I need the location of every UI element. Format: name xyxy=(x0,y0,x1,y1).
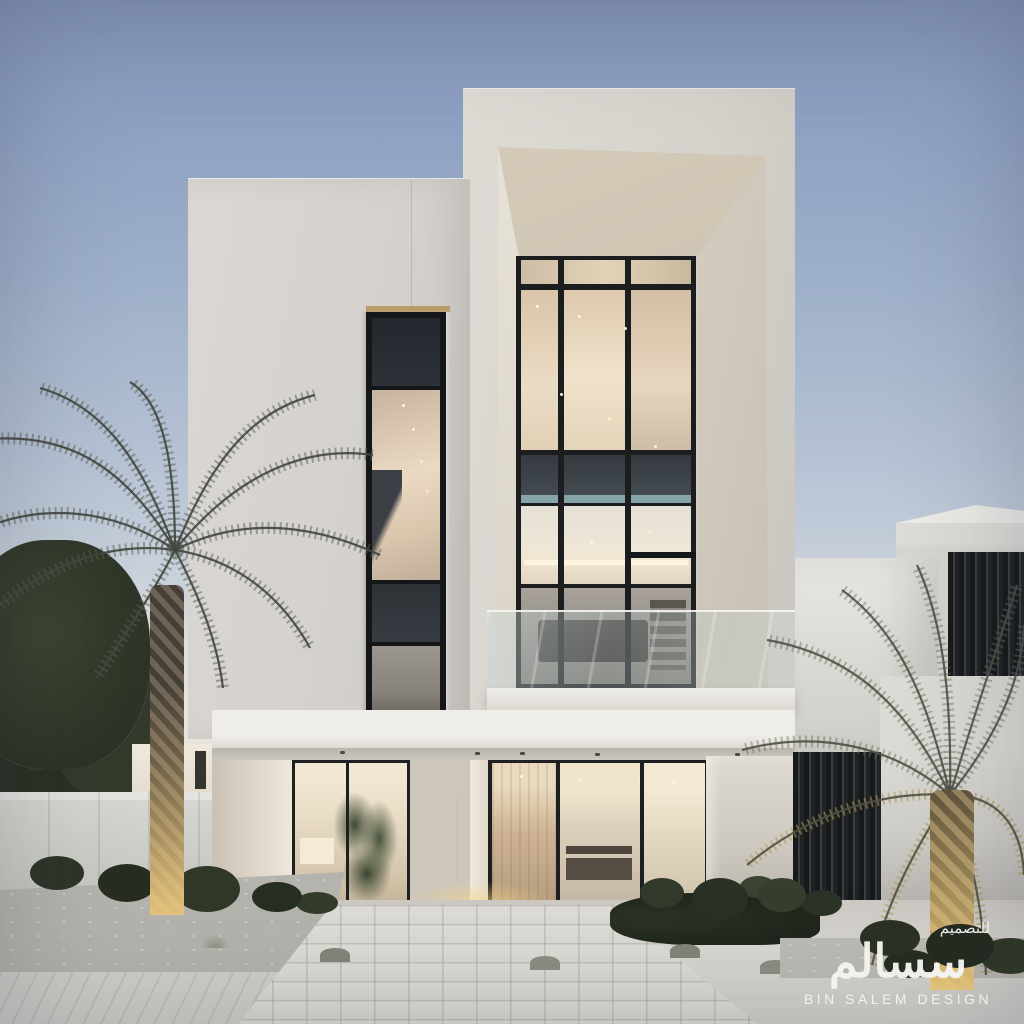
architectural-photo-modern-villa: للتصميم سسالم BIN SALEM DESIGN xyxy=(0,0,1024,1024)
watermark-brand-text: BIN SALEM DESIGN xyxy=(788,992,1008,1006)
vertical-window-spot-lights xyxy=(402,404,405,407)
watermark-arabic-large: سسالم xyxy=(788,938,1008,984)
soffit-spot-fixtures xyxy=(340,751,345,754)
shrubs-right xyxy=(640,878,684,908)
curtain-wall-midframe xyxy=(627,552,696,558)
curtain-wall-transom-bar xyxy=(516,284,696,290)
palm-trunk-left xyxy=(150,585,184,915)
palm-fronds-left xyxy=(0,380,385,710)
outbuilding-window-slit xyxy=(195,751,206,789)
watermark-logo: للتصميم سسالم BIN SALEM DESIGN xyxy=(788,921,1008,1006)
shrubs-left xyxy=(30,856,84,890)
ceiling-spot-lights xyxy=(536,305,539,308)
vertical-window-top-dark-pane xyxy=(372,318,440,386)
watermark-arabic-small: للتصميم xyxy=(788,921,1008,936)
grass-tufts xyxy=(200,934,230,948)
